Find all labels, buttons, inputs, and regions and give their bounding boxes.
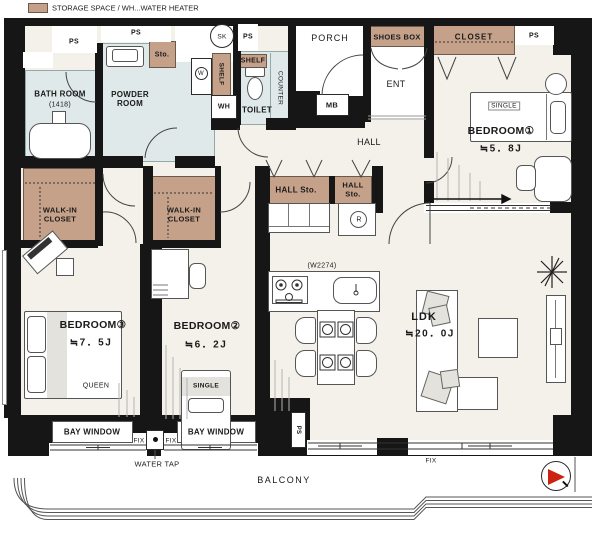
desk-bedroom1 — [534, 156, 572, 202]
wall-segment — [211, 118, 240, 130]
powder-line2: ROOM — [111, 99, 149, 108]
bay-window-1-label: BAY WINDOW — [64, 428, 120, 437]
compass — [541, 461, 571, 491]
bed3-pillow — [27, 356, 46, 393]
hall-storage-1-label: HALL Sto. — [275, 186, 316, 195]
dining-chair — [356, 317, 377, 344]
dining-table — [317, 310, 355, 385]
balcony-label: BALCONY — [257, 475, 311, 485]
dining-chair — [295, 317, 316, 344]
kitchen-sink — [333, 277, 377, 304]
toilet-bowl — [247, 77, 263, 100]
toilet-tank — [245, 67, 265, 77]
walk-in-closet-2-label: WALK-IN CLOSET — [167, 206, 201, 223]
powder-room-label: POWDER ROOM — [111, 90, 149, 108]
fix-label: FIX — [165, 438, 176, 445]
wall-segment — [143, 166, 153, 246]
area-porch — [294, 20, 365, 97]
wall-segment — [95, 43, 103, 168]
legend-storage-swatch — [28, 3, 48, 13]
bedroom1-sliding-door — [424, 203, 550, 213]
bedroom1-label: BEDROOM① — [468, 125, 535, 137]
ldk-window-strip — [307, 440, 553, 455]
wall-segment — [4, 18, 25, 168]
dining-chair — [295, 350, 316, 377]
ps-label: PS — [243, 34, 253, 41]
wall-segment — [329, 176, 335, 204]
chair-bedroom1 — [516, 165, 536, 191]
toilet-label: TOILET — [242, 106, 272, 115]
counter-label: COUNTER — [277, 71, 284, 105]
ps-label: PS — [131, 30, 141, 37]
bedroom2-size: ≒6．2J — [185, 336, 228, 351]
ps-label: PS — [295, 426, 301, 435]
wall-segment — [550, 202, 575, 213]
sofa-cushion — [440, 369, 460, 389]
chair-bedroom2 — [189, 263, 206, 289]
ps-label: PS — [69, 39, 79, 46]
wall-segment — [551, 415, 592, 456]
shoes-box-label: SHOES BOX — [373, 33, 420, 42]
refrigerator-label: R — [356, 217, 361, 224]
bed1-line — [546, 94, 547, 140]
shelf-label: SHELF — [241, 58, 265, 65]
cupboard-divider2 — [309, 204, 310, 226]
left-wall-window — [2, 250, 7, 405]
dining-chair — [356, 350, 377, 377]
wall-segment — [8, 18, 592, 26]
wall-segment — [175, 156, 215, 168]
washer-label: W — [198, 71, 204, 77]
bed1-pillow — [550, 101, 566, 134]
bed2-pillow — [188, 398, 224, 413]
hall-label: HALL — [357, 137, 381, 147]
wall-segment — [424, 18, 434, 158]
bedroom2-label: BEDROOM② — [174, 320, 241, 332]
wic1-line2: CLOSET — [43, 215, 77, 224]
fix-label: FIX — [425, 458, 436, 465]
wall-segment — [215, 166, 221, 248]
bathroom-label: BATH ROOM — [34, 90, 85, 99]
hall-storage-2-label: HALL Sto. — [342, 181, 363, 198]
ldk-window-pier — [377, 438, 408, 456]
bed3-pillow — [27, 316, 46, 353]
powder-line1: POWDER — [111, 90, 149, 99]
walk-in-closet-1-label: WALK-IN CLOSET — [43, 206, 77, 223]
bed2-single-label: SINGLE — [193, 383, 219, 390]
ps-topleft-ext — [23, 52, 53, 68]
wh-label: WH — [218, 104, 230, 111]
wall-segment — [363, 18, 371, 122]
tv-set — [550, 328, 562, 345]
mb-label: MB — [326, 101, 338, 110]
wall-segment — [571, 18, 592, 418]
fix-label: FIX — [133, 438, 144, 445]
sk-label: SK — [217, 34, 226, 41]
stove — [272, 276, 308, 304]
bedroom3-label: BEDROOM③ — [60, 319, 127, 331]
ps-label: PS — [529, 33, 539, 40]
ldk-size: ≒20．0J — [405, 325, 455, 340]
water-tap-dot — [153, 437, 158, 442]
bay-window-2-label: BAY WINDOW — [188, 428, 244, 437]
powder-sink-bowl — [112, 49, 138, 62]
water-tap-label: WATER TAP — [135, 460, 180, 469]
bed3-queen-label: QUEEN — [81, 383, 111, 390]
closet-label: CLOSET — [455, 33, 493, 42]
kitchen-cupboard — [268, 203, 330, 233]
floor-plan: STORAGE SPACE / WH...WATER HEATER — [0, 0, 600, 533]
bedroom1-size: ≒5．8J — [480, 140, 523, 155]
wall-segment — [95, 166, 103, 246]
piano-bench — [56, 258, 74, 276]
ldk-floor-extension — [310, 413, 553, 441]
cupboard-shelf-line — [269, 226, 329, 227]
fix-patch-left — [132, 433, 147, 456]
stool-bedroom1 — [545, 73, 567, 95]
porch-label: PORCH — [311, 33, 349, 43]
shelf-label: SHELF — [218, 63, 225, 86]
desk-bedroom2 — [151, 249, 189, 299]
counter-width-label: (W2274) — [308, 263, 337, 270]
cupboard-divider1 — [288, 204, 289, 226]
bathtub — [29, 123, 91, 159]
bathroom-size: (1418) — [49, 102, 71, 109]
bath-faucet-box — [52, 111, 66, 124]
ent-label: ENT — [387, 79, 406, 89]
ldk-label: LDK — [411, 311, 437, 323]
sto-label: Sto. — [155, 52, 169, 59]
legend-text: STORAGE SPACE / WH...WATER HEATER — [52, 4, 199, 13]
sofa-chaise — [457, 377, 498, 410]
wic2-line2: CLOSET — [167, 215, 201, 224]
coffee-table — [478, 318, 518, 358]
bed1-single-label: SINGLE — [488, 102, 520, 111]
wall-segment — [553, 18, 573, 55]
hall-sto2-line2: Sto. — [342, 190, 363, 199]
bedroom3-size: ≒7．5J — [70, 334, 113, 349]
